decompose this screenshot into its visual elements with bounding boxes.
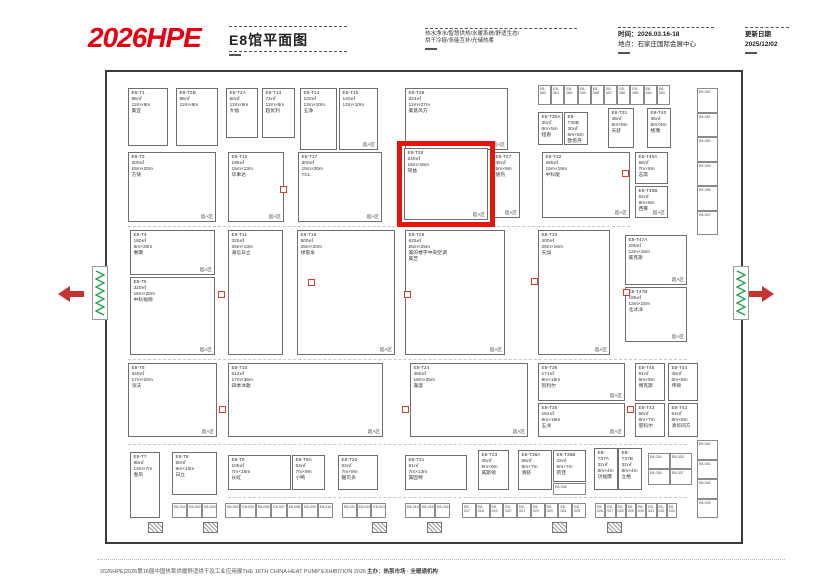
booth-E8-T17[interactable]: E8-T17300㎡15m×20mTCL超A区 xyxy=(298,152,382,222)
stairs-right xyxy=(733,266,749,320)
booth-E8-042[interactable]: E8-042 xyxy=(697,440,718,460)
column-marker xyxy=(627,406,634,413)
booth-exhibitor: 欧思丹 xyxy=(568,139,587,145)
booth-exhibitor: 日立 xyxy=(176,473,216,479)
booth-exhibitor: 大福 xyxy=(230,109,257,115)
booth-E8-049[interactable]: E8-049 xyxy=(697,162,718,187)
zone-badge: 超A区 xyxy=(269,214,281,220)
zone-badge: 超A区 xyxy=(505,210,517,216)
brand-logo: 2026HPE xyxy=(88,22,201,54)
column-marker xyxy=(404,291,411,298)
booth-E8-T30B[interactable]: E8-T30B30㎡6m×5m欧思丹 xyxy=(564,112,588,145)
booth-exhibitor-2: 美芝 xyxy=(409,257,504,263)
booth-E8-T28[interactable]: E8-T28240㎡15m×16m同益超A区 xyxy=(404,148,488,220)
booth-E8-024[interactable]: E8-024 xyxy=(558,503,572,518)
booth-exhibitor: 美意风方 xyxy=(409,109,507,115)
booth-exhibitor: 华事达 xyxy=(232,173,283,179)
zone-badge: 超A区 xyxy=(595,347,607,353)
zone-badge: 超A区 xyxy=(672,334,684,340)
booth-E8-010[interactable]: E8-010 xyxy=(318,503,333,518)
booth-exhibitor: 长虹 xyxy=(232,476,290,482)
zone-badge: 超A区 xyxy=(610,393,622,399)
divider xyxy=(425,48,437,50)
booth-exhibitor: 博克斯 xyxy=(639,384,664,390)
booth-E8-T9[interactable]: E8-T9105㎡7m×15m长虹 xyxy=(228,455,291,490)
column-marker xyxy=(531,278,538,285)
update-block: 更新日期 2025/12/02 xyxy=(745,27,789,54)
booth-E8-039[interactable]: E8-039 xyxy=(697,499,718,519)
booth-E8-058[interactable]: E8-058 xyxy=(591,85,604,105)
booth-E8-015[interactable]: E8-015 xyxy=(420,503,435,518)
booth-E8-061[interactable]: E8-061 xyxy=(551,85,564,105)
zone-badge: 超A区 xyxy=(367,214,379,220)
booth-E8-055[interactable]: E8-055 xyxy=(630,85,643,105)
footer-exhibition-title: 2026HPE|2026第16届中国热泵供暖舒适烘干及工业应用展THE 16TH… xyxy=(100,567,366,575)
door-hatch xyxy=(203,522,218,533)
entrance-arrow-left xyxy=(58,286,84,302)
booth-E8-T37B[interactable]: E8-T37B32㎡8m×4m立格 xyxy=(618,448,642,490)
services-block: 热水净水/智慧供热/水暖系统/舒适生态/ 烘干冷链/多能互补/光储热柔 xyxy=(425,28,577,50)
zone-badge: 超A区 xyxy=(493,142,505,148)
booth-E8-T13[interactable]: E8-T1372㎡12m×6m超优利 xyxy=(262,88,295,138)
column-marker xyxy=(218,291,225,298)
arrow-left-icon xyxy=(58,286,84,302)
column-marker xyxy=(402,406,409,413)
booth-E8-050[interactable]: E8-050 xyxy=(697,137,718,162)
aisle-line xyxy=(128,444,687,445)
booth-exhibitor: 五净 xyxy=(304,109,336,115)
booth-E8-T5[interactable]: E8-T5320㎡16m×20m中科福德超A区 xyxy=(130,277,215,355)
booth-E8-023[interactable]: E8-023 xyxy=(545,503,559,518)
booth-exhibitor: 凯利尔 xyxy=(542,384,624,390)
booth-exhibitor: 美固特 xyxy=(409,476,466,482)
booth-E8-006[interactable]: E8-006 xyxy=(256,503,271,518)
booth-E8-062[interactable]: E8-062 xyxy=(538,85,551,105)
door-hatch xyxy=(372,522,387,533)
booth-E8-T10[interactable]: E8-T10612㎡17m×36m四季沐歌超A区 xyxy=(228,363,383,437)
zone-badge: 超A区 xyxy=(201,214,213,220)
booth-exhibitor: 美宜 xyxy=(132,109,167,115)
booth-E8-017[interactable]: E8-017 xyxy=(462,503,476,518)
booth-exhibitor: 格瑞 xyxy=(651,129,670,135)
divider xyxy=(229,26,347,27)
booth-E8-T33[interactable]: E8-T33400㎡25m×16m天加超A区 xyxy=(538,230,610,355)
booth-E8-T3[interactable]: E8-T3300㎡15m×20m方快超A区 xyxy=(128,152,216,222)
divider xyxy=(229,54,241,56)
booth-exhibitor: 北冰洋 xyxy=(629,308,686,314)
booth-E8-053[interactable]: E8-053 xyxy=(657,85,670,105)
booth-E8-T29[interactable]: E8-T29324㎡12m×27m美意风方超A区 xyxy=(405,88,508,150)
booth-E8-056[interactable]: E8-056 xyxy=(617,85,630,105)
booth-E8-002[interactable]: E8-002 xyxy=(187,503,202,518)
booth-exhibitor: 清舒 xyxy=(522,471,551,477)
footer-organizer: 主办：热泵市场 · 全暖通机构 xyxy=(367,567,438,575)
booth-E8-T27[interactable]: E8-T2745㎡5m×9m德热超A区 xyxy=(492,152,520,218)
booth-E8-T16[interactable]: E8-T16500㎡25m×20m绿思泉超A区 xyxy=(297,230,395,355)
booth-E8-T36[interactable]: E8-T36171㎡9m×19m凯利尔超A区 xyxy=(538,363,625,401)
event-venue: 地点：石家庄国际会展中心 xyxy=(618,40,714,50)
booth-exhibitor: 德热 xyxy=(496,173,519,179)
divider xyxy=(745,52,757,54)
booth-exhibitor: 方快 xyxy=(132,173,215,179)
booth-E8-T1[interactable]: E8-T196㎡12m×8m美宜 xyxy=(128,88,168,146)
booth-E8-T9A[interactable]: E8-T9A63㎡7m×9m小鸭 xyxy=(292,455,325,490)
booth-E8-030[interactable]: E8-030 xyxy=(636,503,646,518)
booth-E8-T11[interactable]: E8-T11325㎡25m×13m海信日立 xyxy=(228,230,283,355)
update-label: 更新日期 xyxy=(745,31,771,38)
booth-exhibitor: 四季沐歌 xyxy=(232,384,382,390)
booth-E8-009[interactable]: E8-009 xyxy=(302,503,317,518)
booth-E8-029[interactable]: E8-029 xyxy=(626,503,636,518)
booth-E8-038[interactable]: E8-038 xyxy=(553,483,586,495)
booth-E8-T45[interactable]: E8-T4581㎡9m×9m博克斯 xyxy=(635,363,665,401)
divider xyxy=(618,27,714,28)
booth-E8-011[interactable]: E8-011 xyxy=(342,503,357,518)
booth-id: E8-T37A xyxy=(598,451,617,463)
booth-E8-T42[interactable]: E8-T4264㎡8m×8m清华同方 xyxy=(668,403,698,437)
booth-E8-T8[interactable]: E8-T890㎡9m×10m日立 xyxy=(172,452,217,495)
door-hatch xyxy=(427,522,442,533)
zone-badge: 超A区 xyxy=(202,429,214,435)
booth-E8-048[interactable]: E8-048 xyxy=(697,186,718,211)
booth-E8-T21[interactable]: E8-T2191㎡7m×13m美固特 xyxy=(405,455,467,490)
booth-E8-037[interactable]: E8-037 xyxy=(670,469,692,485)
booth-E8-T40B[interactable]: E8-T40B64㎡8m×8m西莱超A区 xyxy=(635,186,668,218)
booth-E8-T31[interactable]: E8-T3148㎡6m×8m天舒 xyxy=(608,108,634,148)
stairs-icon xyxy=(736,270,746,316)
booth-E8-057[interactable]: E8-057 xyxy=(604,85,617,105)
booth-E8-040[interactable]: E8-040 xyxy=(697,479,718,499)
door-hatch xyxy=(607,522,622,533)
booth-E8-T26[interactable]: E8-T26625㎡25m×25m美的楼宇中央空调美芝超A区 xyxy=(405,230,505,355)
column-marker xyxy=(622,170,629,177)
booth-E8-033[interactable]: E8-033 xyxy=(667,503,677,518)
booth-exhibitor: 威斯顿 xyxy=(482,471,508,477)
zone-badge: 超A区 xyxy=(513,429,525,435)
zone-badge: 超A区 xyxy=(368,429,380,435)
zone-badge: 超A区 xyxy=(200,267,212,273)
booth-exhibitor: 美克斯 xyxy=(629,256,686,262)
booth-id: E8-T37B xyxy=(622,451,641,463)
booth-E8-007[interactable]: E8-007 xyxy=(271,503,286,518)
booth-E8-T4[interactable]: E8-T4180㎡9m×20m惠康超A区 xyxy=(130,230,215,275)
booth-E8-T12[interactable]: E8-T12195㎡15m×13m华事达超A区 xyxy=(228,152,284,222)
booth-E8-T47B[interactable]: E8-T47B195㎡13m×15m北冰洋超A区 xyxy=(625,287,687,342)
entrance-arrow-right xyxy=(748,286,774,302)
booth-exhibitor: 春风 xyxy=(134,473,159,479)
booth-E8-027[interactable]: E8-027 xyxy=(605,503,615,518)
column-marker xyxy=(219,406,226,413)
booth-E8-060[interactable]: E8-060 xyxy=(564,85,577,105)
services-line2: 烘干冷链/多能互补/光储热柔 xyxy=(425,38,577,45)
booth-size: 12m×10m xyxy=(343,103,377,109)
booth-E8-T37A[interactable]: E8-T37A32㎡8m×4m功福康 xyxy=(594,448,618,490)
booth-E8-T14[interactable]: E8-T14120㎡12m×10m五净 xyxy=(300,88,337,150)
booth-E8-021[interactable]: E8-021 xyxy=(517,503,531,518)
booth-E8-052[interactable]: E8-052 xyxy=(697,88,718,113)
booth-E8-059[interactable]: E8-059 xyxy=(578,85,591,105)
booth-E8-036[interactable]: E8-036 xyxy=(648,469,670,485)
column-marker xyxy=(623,289,630,296)
stairs-icon xyxy=(95,270,105,316)
stairs-left xyxy=(92,266,108,320)
booth-exhibitor: 清华同方 xyxy=(672,424,697,430)
booth-E8-041[interactable]: E8-041 xyxy=(697,460,718,480)
booth-E8-T47A[interactable]: E8-T47A180㎡12m×15m美克斯超A区 xyxy=(625,235,687,285)
booth-E8-T2A[interactable]: E8-T2A60㎡12m×5m大福 xyxy=(226,88,258,138)
zone-badge: 超A区 xyxy=(363,142,375,148)
aisle-line xyxy=(128,226,630,227)
booth-exhibitor: 惠康 xyxy=(134,251,214,257)
footer-divider xyxy=(97,559,785,560)
booth-E8-T6[interactable]: E8-T6340㎡17m×20m派沃超A区 xyxy=(128,363,217,437)
hall-title-block: E8馆平面图 xyxy=(229,26,347,56)
booth-E8-034[interactable]: E8-034 xyxy=(648,453,670,469)
booth-E8-T40A[interactable]: E8-T40A56㎡7m×8m志高 xyxy=(635,152,668,184)
booth-exhibitor: 天加 xyxy=(542,251,609,257)
booth-E8-T40[interactable]: E8-T4036㎡6m×6m格瑞 xyxy=(647,108,671,148)
booth-E8-025[interactable]: E8-025 xyxy=(572,503,586,518)
booth-E8-035[interactable]: E8-035 xyxy=(670,453,692,469)
booth-E8-008[interactable]: E8-008 xyxy=(287,503,302,518)
zone-badge: 超A区 xyxy=(380,347,392,353)
door-hatch xyxy=(148,522,163,533)
booth-exhibitor: 派沃 xyxy=(132,384,216,390)
hall-title: E8馆平面图 xyxy=(229,29,347,51)
aisle-line xyxy=(128,359,687,360)
divider xyxy=(229,51,347,52)
booth-exhibitor: 暖贝多 xyxy=(342,476,377,482)
booth-exhibitor: 嘉度 xyxy=(414,384,527,390)
booth-E8-001[interactable]: E8-001 xyxy=(172,503,187,518)
booth-exhibitor: 功福康 xyxy=(598,475,617,481)
booth-E8-T36B[interactable]: E8-T36B42㎡6m×7m航佳 xyxy=(553,450,586,482)
booth-E8-T23[interactable]: E8-T2345㎡5m×9m威斯顿 xyxy=(478,450,509,490)
booth-E8-051[interactable]: E8-051 xyxy=(697,113,718,138)
zone-badge: 超A区 xyxy=(653,210,665,216)
update-date: 2025/12/02 xyxy=(745,41,778,48)
booth-E8-018[interactable]: E8-018 xyxy=(476,503,490,518)
divider xyxy=(425,28,577,29)
zone-badge: 超A区 xyxy=(615,210,627,216)
booth-E8-028[interactable]: E8-028 xyxy=(616,503,626,518)
booth-E8-T2B[interactable]: E8-T2B96㎡12m×8m xyxy=(176,88,218,146)
booth-E8-012[interactable]: E8-012 xyxy=(357,503,372,518)
aisle-line xyxy=(228,497,687,498)
column-marker xyxy=(308,279,315,286)
booth-exhibitor: 伟顿 xyxy=(672,384,697,390)
zone-badge: 超A区 xyxy=(473,212,485,218)
booth-exhibitor: 航佳 xyxy=(557,471,585,477)
booth-E8-T15[interactable]: E8-T15120㎡12m×10m超A区 xyxy=(339,88,378,150)
booth-E8-054[interactable]: E8-054 xyxy=(644,85,657,105)
booth-exhibitor: 思科尔 xyxy=(639,424,664,430)
booth-exhibitor: 超优利 xyxy=(266,109,294,115)
booth-E8-003[interactable]: E8-003 xyxy=(202,503,217,518)
booth-exhibitor: 天舒 xyxy=(612,129,633,135)
door-hatch xyxy=(552,522,567,533)
booth-E8-T20[interactable]: E8-T2063㎡7m×9m暖贝多 xyxy=(338,455,378,490)
booth-E8-031[interactable]: E8-031 xyxy=(646,503,656,518)
arrow-right-icon xyxy=(748,286,774,302)
booth-exhibitor: 中科福德 xyxy=(134,298,214,304)
booth-E8-016[interactable]: E8-016 xyxy=(435,503,450,518)
zone-badge: 超A区 xyxy=(672,277,684,283)
booth-exhibitor: 绿思泉 xyxy=(301,251,394,257)
booth-exhibitor: TCL xyxy=(302,173,381,179)
booth-E8-T30A[interactable]: E8-T30A30㎡6m×5m纽恩 xyxy=(538,112,563,145)
booth-exhibitor: 海信日立 xyxy=(232,251,282,257)
booth-E8-T35[interactable]: E8-T35152㎡8m×19m五洲超A区 xyxy=(538,403,625,437)
booth-exhibitor: 中科能 xyxy=(546,173,629,179)
divider xyxy=(618,52,630,54)
booth-size: 12m×8m xyxy=(180,103,217,109)
booth-E8-004[interactable]: E8-004 xyxy=(225,503,240,518)
zone-badge: 超A区 xyxy=(490,347,502,353)
floorplan-page: 2026HPE E8馆平面图 热水净水/智慧供热/水暖系统/舒适生态/ 烘干冷链… xyxy=(0,0,829,586)
event-time: 时间：2026.03.16-18 xyxy=(618,31,679,38)
booth-id: E8-T30B xyxy=(568,115,587,127)
booth-E8-032[interactable]: E8-032 xyxy=(657,503,667,518)
booth-E8-014[interactable]: E8-014 xyxy=(405,503,420,518)
zone-badge: 超A区 xyxy=(200,347,212,353)
booth-exhibitor: 志高 xyxy=(639,173,667,179)
booth-E8-019[interactable]: E8-019 xyxy=(490,503,504,518)
booth-exhibitor: 立格 xyxy=(622,475,641,481)
booth-E8-T44[interactable]: E8-T4448㎡6m×8m伟顿 xyxy=(668,363,698,401)
column-marker xyxy=(280,186,287,193)
booth-E8-T24[interactable]: E8-T24450㎡18m×25m嘉度超A区 xyxy=(410,363,528,437)
booth-E8-026[interactable]: E8-026 xyxy=(595,503,605,518)
booth-E8-020[interactable]: E8-020 xyxy=(503,503,517,518)
booth-E8-T43[interactable]: E8-T4356㎡8m×7m思科尔 xyxy=(635,403,665,437)
booth-E8-T32[interactable]: E8-T32285㎡15m×19m中科能超A区 xyxy=(542,152,630,218)
divider xyxy=(745,27,789,28)
booth-E8-005[interactable]: E8-005 xyxy=(240,503,255,518)
booth-exhibitor: 小鸭 xyxy=(296,476,324,482)
event-meta-block: 时间：2026.03.16-18 地点：石家庄国际会展中心 xyxy=(618,27,714,54)
booth-E8-T7[interactable]: E8-T798㎡14m×7m春风 xyxy=(130,452,160,518)
booth-E8-047[interactable]: E8-047 xyxy=(697,211,718,236)
booth-E8-T36A[interactable]: E8-T36A56㎡8m×7m清舒 xyxy=(518,450,552,490)
booth-E8-022[interactable]: E8-022 xyxy=(531,503,545,518)
zone-badge: 超A区 xyxy=(610,429,622,435)
booth-exhibitor: 同益 xyxy=(408,169,487,175)
booth-E8-013[interactable]: E8-013 xyxy=(371,503,386,518)
booth-exhibitor: 纽恩 xyxy=(542,133,562,139)
